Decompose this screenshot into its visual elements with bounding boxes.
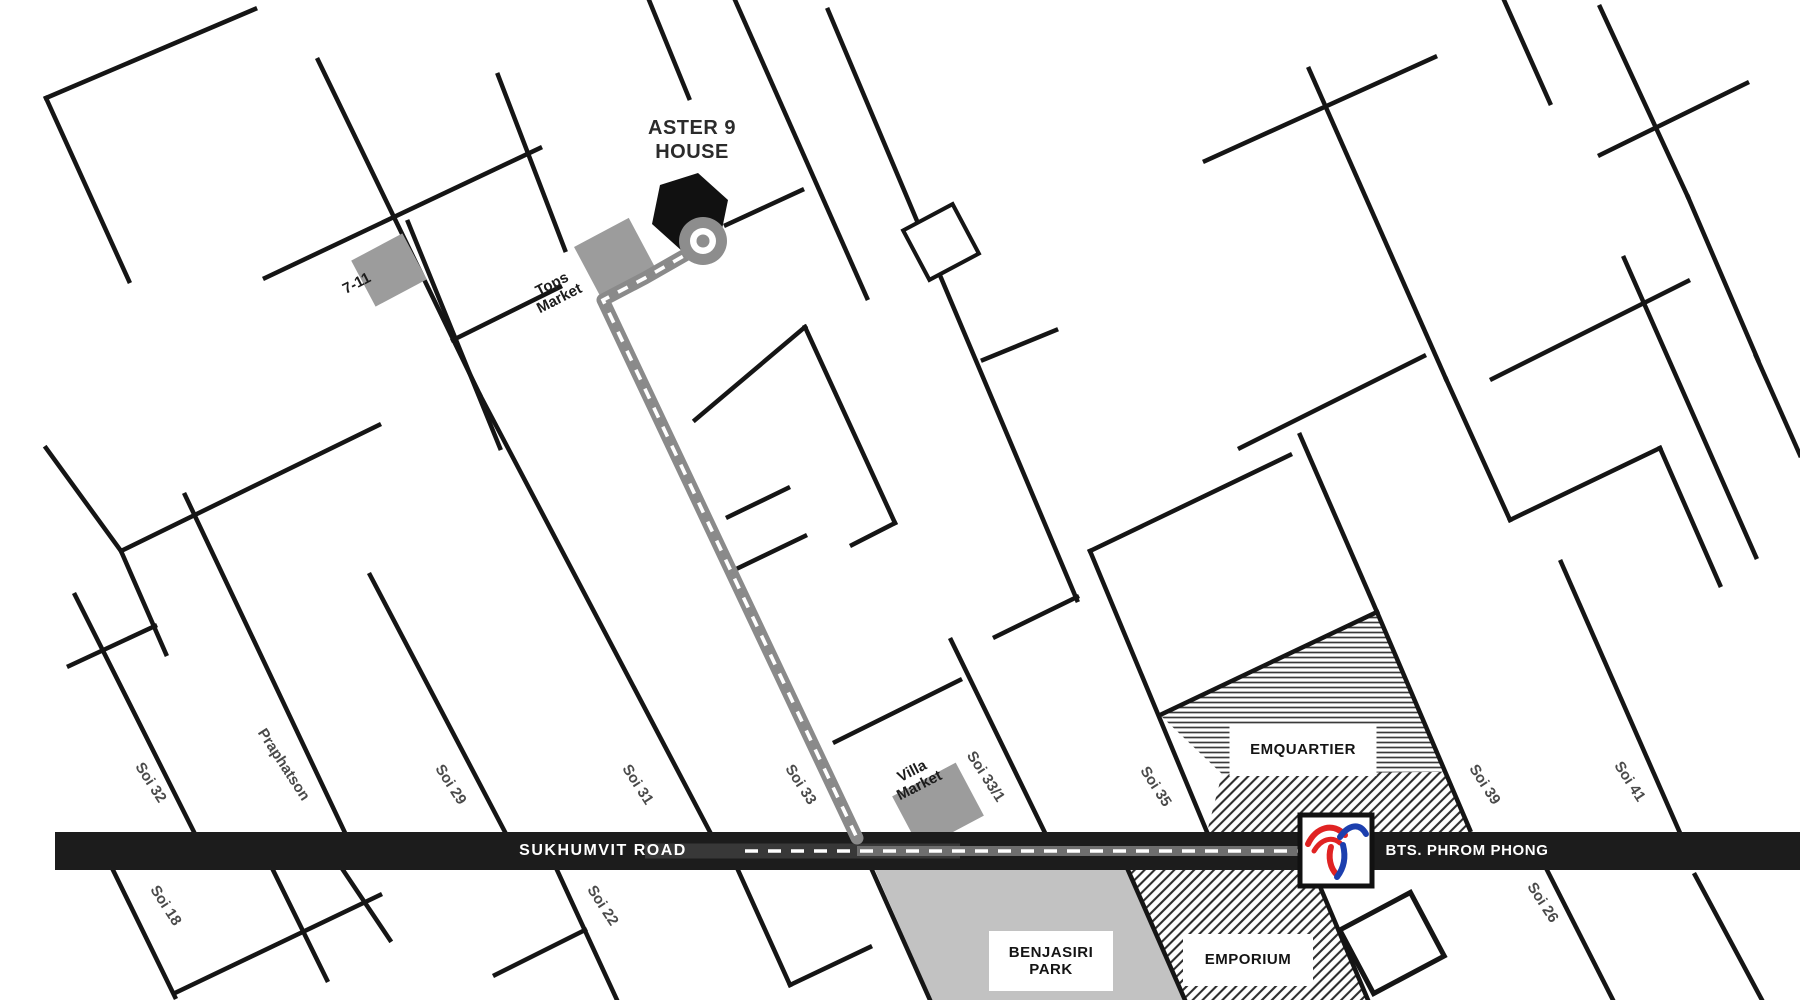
tops-market-building [574,218,656,298]
route-path [603,246,857,838]
emporium-text: EMPORIUM [1205,951,1292,968]
benjasiri-line1: BENJASIRI [1009,944,1094,961]
roundabout-icon [679,217,727,265]
emquartier-label: EMQUARTIER [1230,724,1377,776]
destination-line2: HOUSE [648,140,736,164]
destination-line1: ASTER 9 [648,116,736,140]
bts-logo-icon [1300,815,1372,886]
route [603,246,1302,851]
emquartier-text: EMQUARTIER [1250,741,1356,758]
benjasiri-text: BENJASIRI PARK [1009,944,1094,979]
destination-label: ASTER 9 HOUSE [648,116,736,164]
sukhumvit-road-label: SUKHUMVIT ROAD [519,842,687,860]
benjasiri-line2: PARK [1009,961,1094,978]
street-map: ASTER 9 HOUSE 7-11 Tops Market Villa Mar… [0,0,1800,1000]
bts-station-label: BTS. PHROM PHONG [1386,843,1549,860]
emporium-label: EMPORIUM [1183,934,1313,986]
benjasiri-park-label: BENJASIRI PARK [989,931,1113,991]
